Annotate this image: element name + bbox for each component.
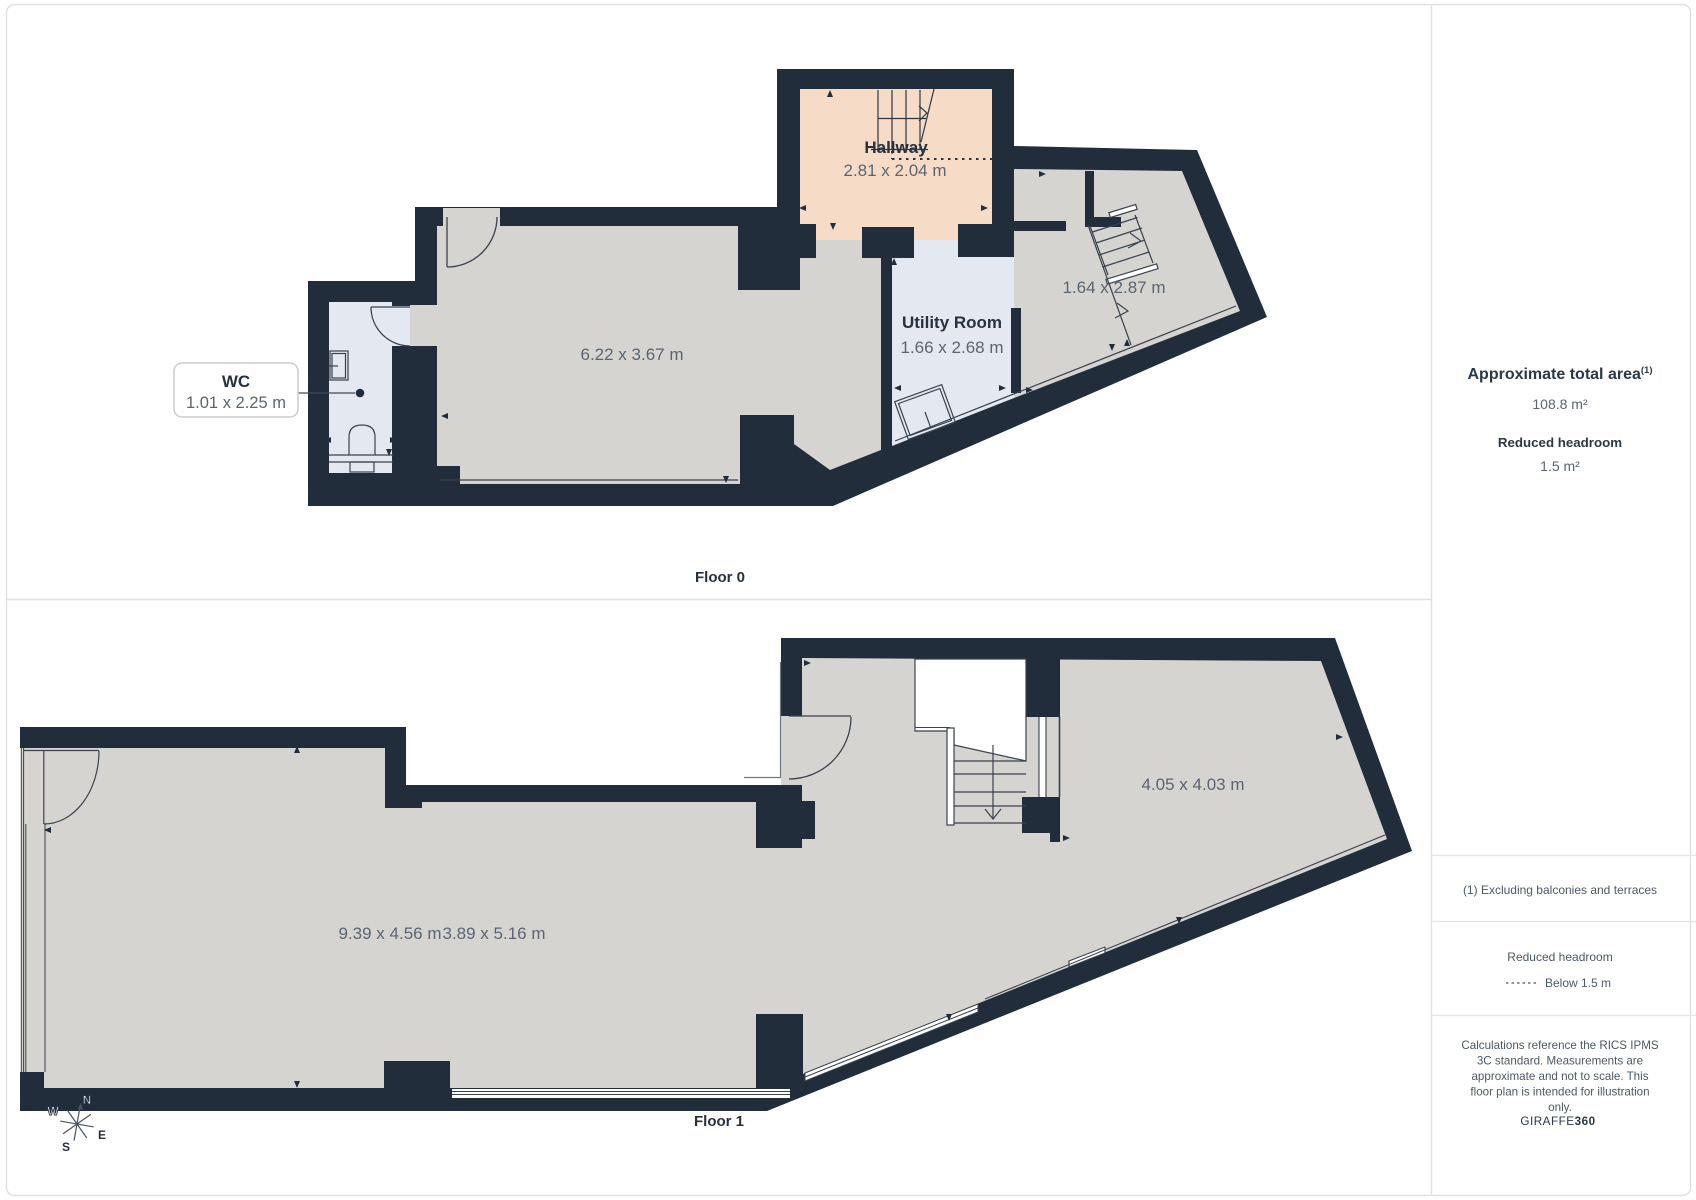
- svg-text:Reduced headroom: Reduced headroom: [1507, 950, 1612, 964]
- svg-text:approximate and not to scale.: approximate and not to scale. This: [1471, 1070, 1648, 1083]
- svg-text:3C standard. Measurements are: 3C standard. Measurements are: [1477, 1055, 1643, 1068]
- svg-text:GIRAFFE360: GIRAFFE360: [1520, 1115, 1595, 1128]
- svg-text:(1) Excluding balconies and te: (1) Excluding balconies and terraces: [1463, 883, 1657, 897]
- svg-text:Reduced headroom: Reduced headroom: [1498, 435, 1622, 450]
- svg-text:Below 1.5 m: Below 1.5 m: [1545, 976, 1611, 990]
- svg-text:1.01 x 2.25 m: 1.01 x 2.25 m: [186, 394, 286, 412]
- svg-text:Calculations reference the RIC: Calculations reference the RICS IPMS: [1461, 1039, 1658, 1052]
- svg-text:2.81 x 2.04 m: 2.81 x 2.04 m: [843, 161, 946, 180]
- svg-text:N: N: [83, 1093, 92, 1107]
- svg-text:E: E: [98, 1128, 106, 1142]
- svg-text:108.8 m²: 108.8 m²: [1532, 396, 1588, 412]
- svg-text:1.64 x 2.87 m: 1.64 x 2.87 m: [1062, 278, 1165, 297]
- svg-text:Approximate total area(1): Approximate total area(1): [1467, 365, 1652, 383]
- svg-text:4.05 x 4.03 m: 4.05 x 4.03 m: [1141, 775, 1244, 794]
- svg-text:only.: only.: [1548, 1101, 1572, 1114]
- svg-text:Utility Room: Utility Room: [902, 313, 1002, 332]
- svg-text:9.39 x 4.56 m: 9.39 x 4.56 m: [338, 924, 441, 943]
- svg-text:floor plan is intended for ill: floor plan is intended for illustration: [1470, 1086, 1649, 1099]
- svg-text:Floor 0: Floor 0: [695, 569, 745, 586]
- svg-text:3.89 x 5.16 m: 3.89 x 5.16 m: [442, 924, 545, 943]
- svg-text:1.5 m²: 1.5 m²: [1540, 458, 1580, 474]
- svg-text:6.22 x 3.67 m: 6.22 x 3.67 m: [580, 345, 683, 364]
- svg-text:Hallway: Hallway: [864, 138, 928, 157]
- svg-text:S: S: [62, 1140, 70, 1154]
- svg-text:W: W: [47, 1104, 59, 1118]
- svg-text:WC: WC: [222, 372, 250, 391]
- svg-text:1.66 x 2.68 m: 1.66 x 2.68 m: [900, 338, 1003, 357]
- svg-text:Floor 1: Floor 1: [694, 1113, 744, 1130]
